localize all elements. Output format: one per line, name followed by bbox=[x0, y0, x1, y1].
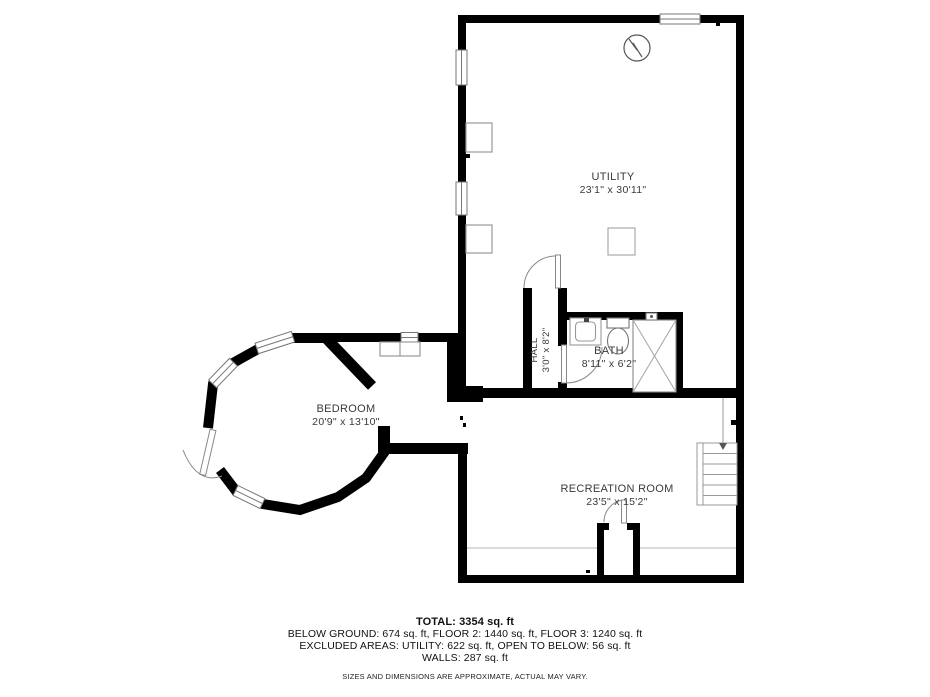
bedroom-door bbox=[183, 429, 222, 478]
room-label-bath: BATH 8'11" x 6'2" bbox=[582, 345, 637, 371]
excluded-areas: EXCLUDED AREAS: UTILITY: 622 sq. ft, OPE… bbox=[0, 640, 930, 652]
disclaimer-text: SIZES AND DIMENSIONS ARE APPROXIMATE, AC… bbox=[0, 671, 930, 683]
floor-areas: BELOW GROUND: 674 sq. ft, FLOOR 2: 1440 … bbox=[0, 628, 930, 640]
area-summary: TOTAL: 3354 sq. ft BELOW GROUND: 674 sq.… bbox=[0, 616, 930, 683]
room-dimensions: 23'1" x 30'11" bbox=[580, 184, 647, 197]
room-name: BATH bbox=[582, 345, 637, 358]
room-label-hall: HALL 3'0" x 8'2" bbox=[529, 328, 553, 373]
window-symbols bbox=[209, 14, 700, 509]
bath-divider-upper bbox=[558, 320, 567, 346]
room-name: RECREATION ROOM bbox=[560, 483, 673, 496]
mid-dividing-wall bbox=[483, 388, 744, 398]
sink-icon bbox=[570, 318, 601, 345]
entry-vestibule-walls bbox=[597, 523, 640, 577]
room-dimensions: 20'9" x 13'10" bbox=[312, 416, 380, 429]
window-top-wall bbox=[660, 14, 700, 24]
corridor-wall bbox=[383, 443, 468, 454]
room-label-bedroom: BEDROOM 20'9" x 13'10" bbox=[312, 403, 380, 429]
utility-equipment-box-1 bbox=[466, 123, 492, 152]
bedroom-shelf bbox=[380, 342, 420, 356]
top-wall bbox=[458, 15, 744, 23]
room-label-utility: UTILITY 23'1" x 30'11" bbox=[580, 171, 647, 197]
door-leaf bbox=[200, 429, 216, 475]
window-turret-left bbox=[209, 358, 238, 387]
stairs-icon bbox=[697, 398, 737, 505]
wall-corner-block bbox=[447, 386, 483, 402]
floor-plan-page: UTILITY 23'1" x 30'11" HALL 3'0" x 8'2" … bbox=[0, 0, 930, 697]
bath-divider-lower bbox=[558, 382, 567, 394]
door-leaf bbox=[556, 255, 561, 288]
door-leaf bbox=[562, 345, 567, 383]
utility-equipment-box-2 bbox=[466, 225, 492, 253]
room-label-recreation: RECREATION ROOM 23'5" x 15'2" bbox=[560, 483, 673, 509]
bedroom-top-wall bbox=[328, 333, 447, 342]
recreation-left-wall bbox=[458, 450, 467, 583]
water-heater-icon bbox=[624, 35, 650, 61]
room-dimensions: 23'5" x 15'2" bbox=[560, 496, 673, 509]
window-turret-top bbox=[255, 331, 295, 353]
room-name: UTILITY bbox=[580, 171, 647, 184]
total-area: TOTAL: 3354 sq. ft bbox=[0, 616, 930, 628]
room-dimensions: 3'0" x 8'2" bbox=[541, 328, 553, 373]
bedroom-diagonal-wall bbox=[325, 337, 372, 386]
shower-icon bbox=[633, 313, 676, 392]
walls-area: WALLS: 287 sq. ft bbox=[0, 652, 930, 664]
room-name: BEDROOM bbox=[312, 403, 380, 416]
room-name: HALL bbox=[529, 328, 541, 373]
recreation-details bbox=[467, 523, 736, 577]
shower-right-wall bbox=[676, 312, 683, 394]
hall-door bbox=[524, 255, 561, 288]
floor-plan-drawing bbox=[0, 0, 930, 697]
room-dimensions: 8'11" x 6'2" bbox=[582, 358, 637, 371]
window-bedroom-topwall bbox=[401, 333, 418, 343]
window-utility-left-1 bbox=[456, 50, 467, 85]
window-turret-bottom bbox=[233, 485, 265, 508]
door-arc bbox=[524, 256, 556, 288]
support-post bbox=[608, 228, 635, 255]
window-utility-left-2 bbox=[456, 182, 467, 215]
